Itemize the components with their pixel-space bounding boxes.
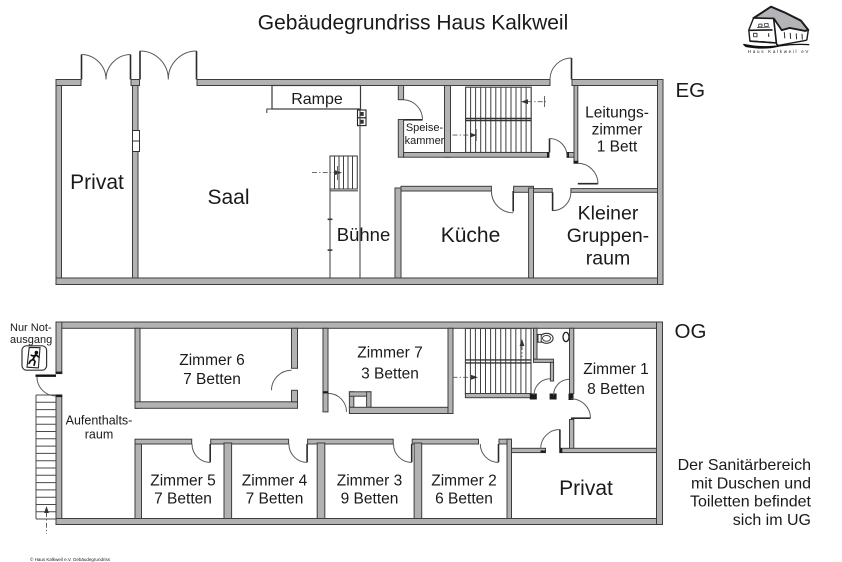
svg-text:7 Betten: 7 Betten	[246, 491, 304, 508]
svg-text:Toiletten befindet: Toiletten befindet	[690, 494, 812, 511]
svg-text:Zimmer 6: Zimmer 6	[179, 352, 244, 369]
svg-text:sich im UG: sich im UG	[733, 512, 811, 529]
svg-text:Zimmer 5: Zimmer 5	[150, 473, 215, 490]
svg-text:3 Betten: 3 Betten	[361, 366, 419, 383]
svg-text:Haus Kalkweil eV: Haus Kalkweil eV	[748, 49, 810, 54]
svg-text:© Haus Kalkweil e.V. Gebäudegr: © Haus Kalkweil e.V. Gebäudegrundriss	[30, 556, 111, 562]
svg-text:mit Duschen und: mit Duschen und	[691, 475, 811, 492]
svg-text:EG: EG	[676, 79, 706, 102]
svg-text:ausgang: ausgang	[10, 334, 52, 346]
svg-text:Gruppen-: Gruppen-	[567, 225, 649, 247]
svg-text:Zimmer 1: Zimmer 1	[583, 361, 648, 378]
svg-text:8 Betten: 8 Betten	[587, 381, 645, 398]
svg-text:Aufenthalts-: Aufenthalts-	[66, 414, 133, 428]
svg-text:Zimmer 3: Zimmer 3	[337, 473, 402, 490]
svg-text:Bühne: Bühne	[337, 224, 391, 245]
svg-text:Rampe: Rampe	[291, 91, 343, 108]
svg-text:Speise-: Speise-	[406, 122, 444, 134]
svg-text:Zimmer 2: Zimmer 2	[431, 473, 496, 490]
svg-text:Nur Not-: Nur Not-	[10, 322, 52, 334]
svg-text:raum: raum	[586, 248, 630, 270]
svg-text:6 Betten: 6 Betten	[435, 491, 493, 508]
svg-text:Leitungs-: Leitungs-	[585, 105, 649, 122]
svg-text:Privat: Privat	[559, 477, 613, 500]
svg-text:zimmer: zimmer	[592, 122, 643, 139]
svg-text:Kleiner: Kleiner	[578, 203, 639, 225]
svg-text:7 Betten: 7 Betten	[183, 371, 241, 388]
svg-text:Küche: Küche	[441, 224, 501, 247]
svg-text:Der Sanitärbereich: Der Sanitärbereich	[678, 457, 811, 474]
svg-text:7 Betten: 7 Betten	[154, 491, 212, 508]
svg-text:raum: raum	[85, 428, 113, 442]
svg-text:kammer: kammer	[405, 135, 445, 147]
svg-text:Zimmer 4: Zimmer 4	[242, 473, 308, 490]
svg-text:OG: OG	[675, 320, 707, 343]
svg-text:Saal: Saal	[207, 186, 249, 209]
svg-text:Gebäudegrundriss Haus Kalkweil: Gebäudegrundriss Haus Kalkweil	[258, 12, 569, 35]
svg-text:1 Bett: 1 Bett	[597, 139, 638, 156]
svg-text:Zimmer 7: Zimmer 7	[357, 345, 422, 362]
svg-text:Privat: Privat	[70, 171, 124, 194]
svg-text:9 Betten: 9 Betten	[341, 491, 399, 508]
